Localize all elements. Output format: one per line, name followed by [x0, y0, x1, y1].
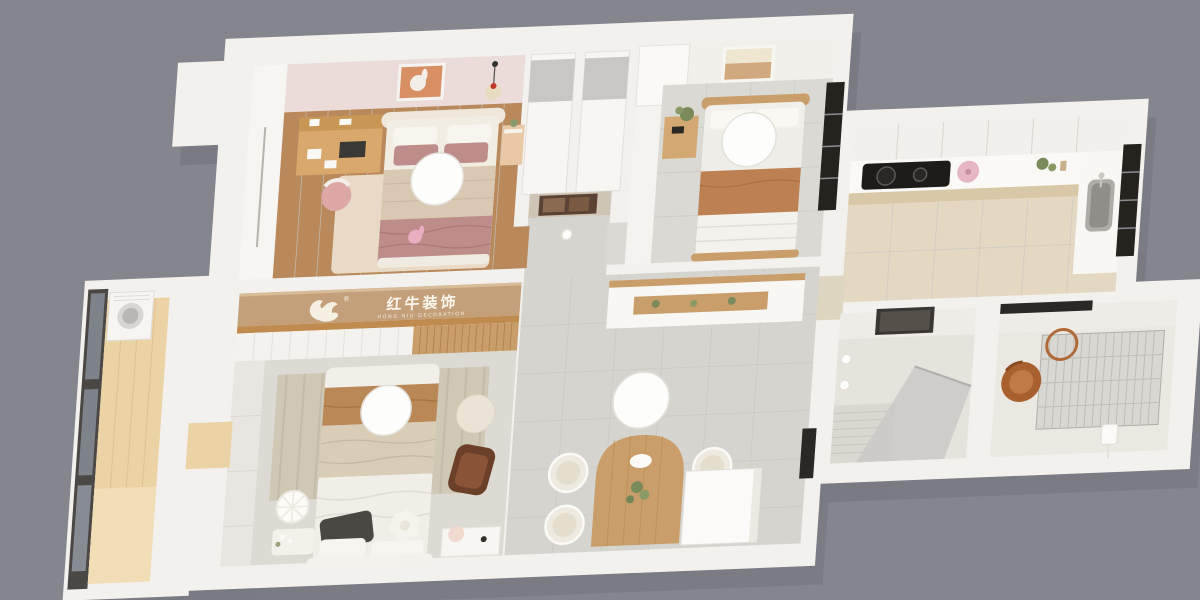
- pillow: [447, 124, 492, 144]
- floorplan-render: ® 红牛装饰 HONG NIU DECORATION: [0, 0, 1200, 600]
- foyer-floor: [524, 215, 610, 278]
- caramel-blanket: [698, 167, 801, 217]
- bathroom: [830, 305, 977, 463]
- washing-machine: [107, 291, 154, 341]
- desk: [296, 114, 384, 175]
- bathroom-door: [875, 307, 935, 335]
- bedroom-kids: [239, 55, 530, 280]
- balcony-doorway: [185, 422, 232, 470]
- folded-duvet: [695, 211, 798, 255]
- clock: [672, 126, 684, 133]
- nightstand-master: [441, 524, 501, 556]
- cooktop: [861, 160, 951, 190]
- wall-art-bunny: [398, 64, 444, 100]
- wall-light: [841, 354, 852, 364]
- nightstand-kids: [500, 119, 525, 166]
- door-opening-kids: [507, 226, 530, 269]
- registered-mark: ®: [343, 294, 351, 303]
- entry-mirror: [538, 194, 597, 216]
- storage-cabinet: [606, 273, 805, 329]
- wall-light: [562, 229, 573, 239]
- render-canvas: ® 红牛装饰 HONG NIU DECORATION: [0, 0, 1200, 600]
- side-table: [271, 528, 315, 556]
- kitchen: [812, 114, 1144, 321]
- dining-area: [505, 266, 828, 555]
- laptop: [339, 141, 366, 158]
- logo-chinese: 红牛装饰: [386, 293, 459, 314]
- refrigerator: [681, 468, 762, 545]
- floor-mat: [88, 486, 157, 583]
- drying-rack: [1036, 330, 1165, 429]
- wall-light: [839, 380, 850, 390]
- utility-room: [990, 297, 1178, 463]
- bedroom-second: [625, 38, 848, 264]
- pillow: [393, 126, 438, 146]
- wall-art-landscape: [721, 45, 776, 83]
